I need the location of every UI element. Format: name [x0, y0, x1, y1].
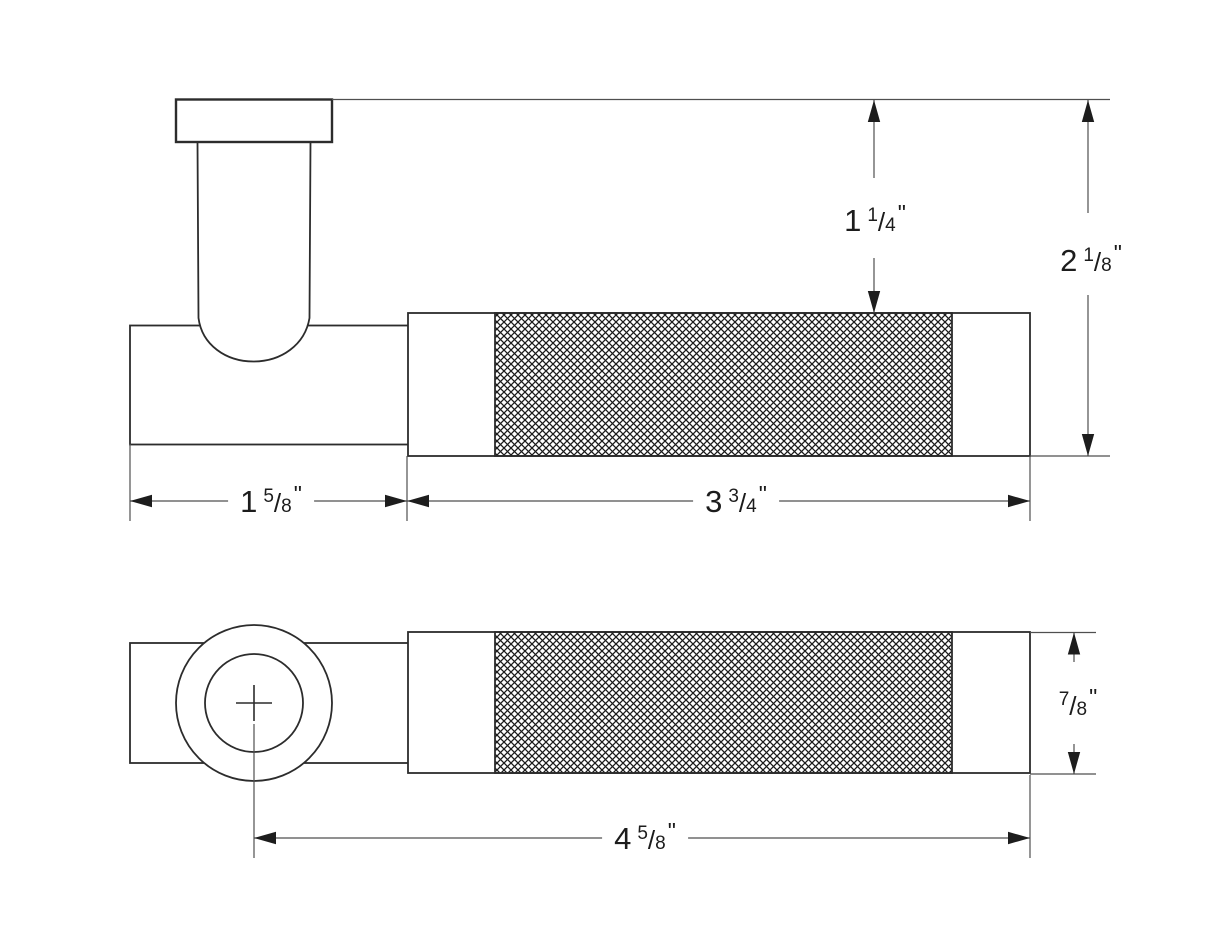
fraction-numerator: 5 — [637, 823, 648, 844]
inch-mark: " — [668, 818, 676, 844]
fraction-denominator: 8 — [1077, 699, 1088, 720]
inch-mark: " — [759, 481, 767, 507]
fraction-numerator: 3 — [728, 486, 739, 507]
fraction-denominator: 8 — [655, 833, 666, 854]
drawing-svg — [0, 0, 1214, 945]
fraction-slash: / — [274, 488, 281, 518]
dimension-label-rose-width: 15/8" — [228, 481, 314, 519]
fraction-slash: / — [648, 825, 655, 855]
inch-mark: " — [1089, 684, 1097, 710]
side-elevation-view — [130, 100, 1030, 457]
technical-drawing-canvas: 11/4" 21/8" 15/8" 33/4" 7/8" 45/8" — [0, 0, 1214, 945]
whole-number: 3 — [705, 484, 722, 519]
dimension-label-grip-length: 33/4" — [693, 481, 779, 519]
plan-view-knurl-grip — [495, 632, 952, 773]
fraction-numerator: 5 — [263, 486, 274, 507]
inch-mark: " — [898, 200, 906, 226]
whole-number: 1 — [844, 203, 861, 238]
side-view-knurl-grip — [495, 313, 952, 456]
inch-mark: " — [294, 481, 302, 507]
fraction-slash: / — [739, 488, 746, 518]
fraction-denominator: 8 — [1101, 255, 1112, 276]
whole-number: 4 — [614, 821, 631, 856]
fraction-slash: / — [878, 207, 885, 237]
side-view-spindle-cap — [176, 100, 332, 143]
fraction-slash: / — [1094, 247, 1101, 277]
fraction-denominator: 4 — [746, 496, 757, 517]
dimension-label-neck-height: 11/4" — [832, 200, 918, 238]
dimension-label-overall-height: 21/8" — [1048, 240, 1134, 278]
fraction-denominator: 4 — [885, 215, 896, 236]
side-view-stem — [198, 142, 311, 362]
fraction-numerator: 1 — [1083, 245, 1094, 266]
whole-number: 2 — [1060, 243, 1077, 278]
plan-view — [130, 625, 1030, 781]
fraction-denominator: 8 — [281, 496, 292, 517]
inch-mark: " — [1114, 240, 1122, 266]
whole-number: 1 — [240, 484, 257, 519]
fraction-slash: / — [1069, 691, 1076, 721]
fraction-numerator: 1 — [867, 205, 878, 226]
fraction-numerator: 7 — [1059, 689, 1070, 710]
dimension-label-bar-diameter: 7/8" — [1041, 684, 1110, 722]
dimension-label-overall-length: 45/8" — [602, 818, 688, 856]
